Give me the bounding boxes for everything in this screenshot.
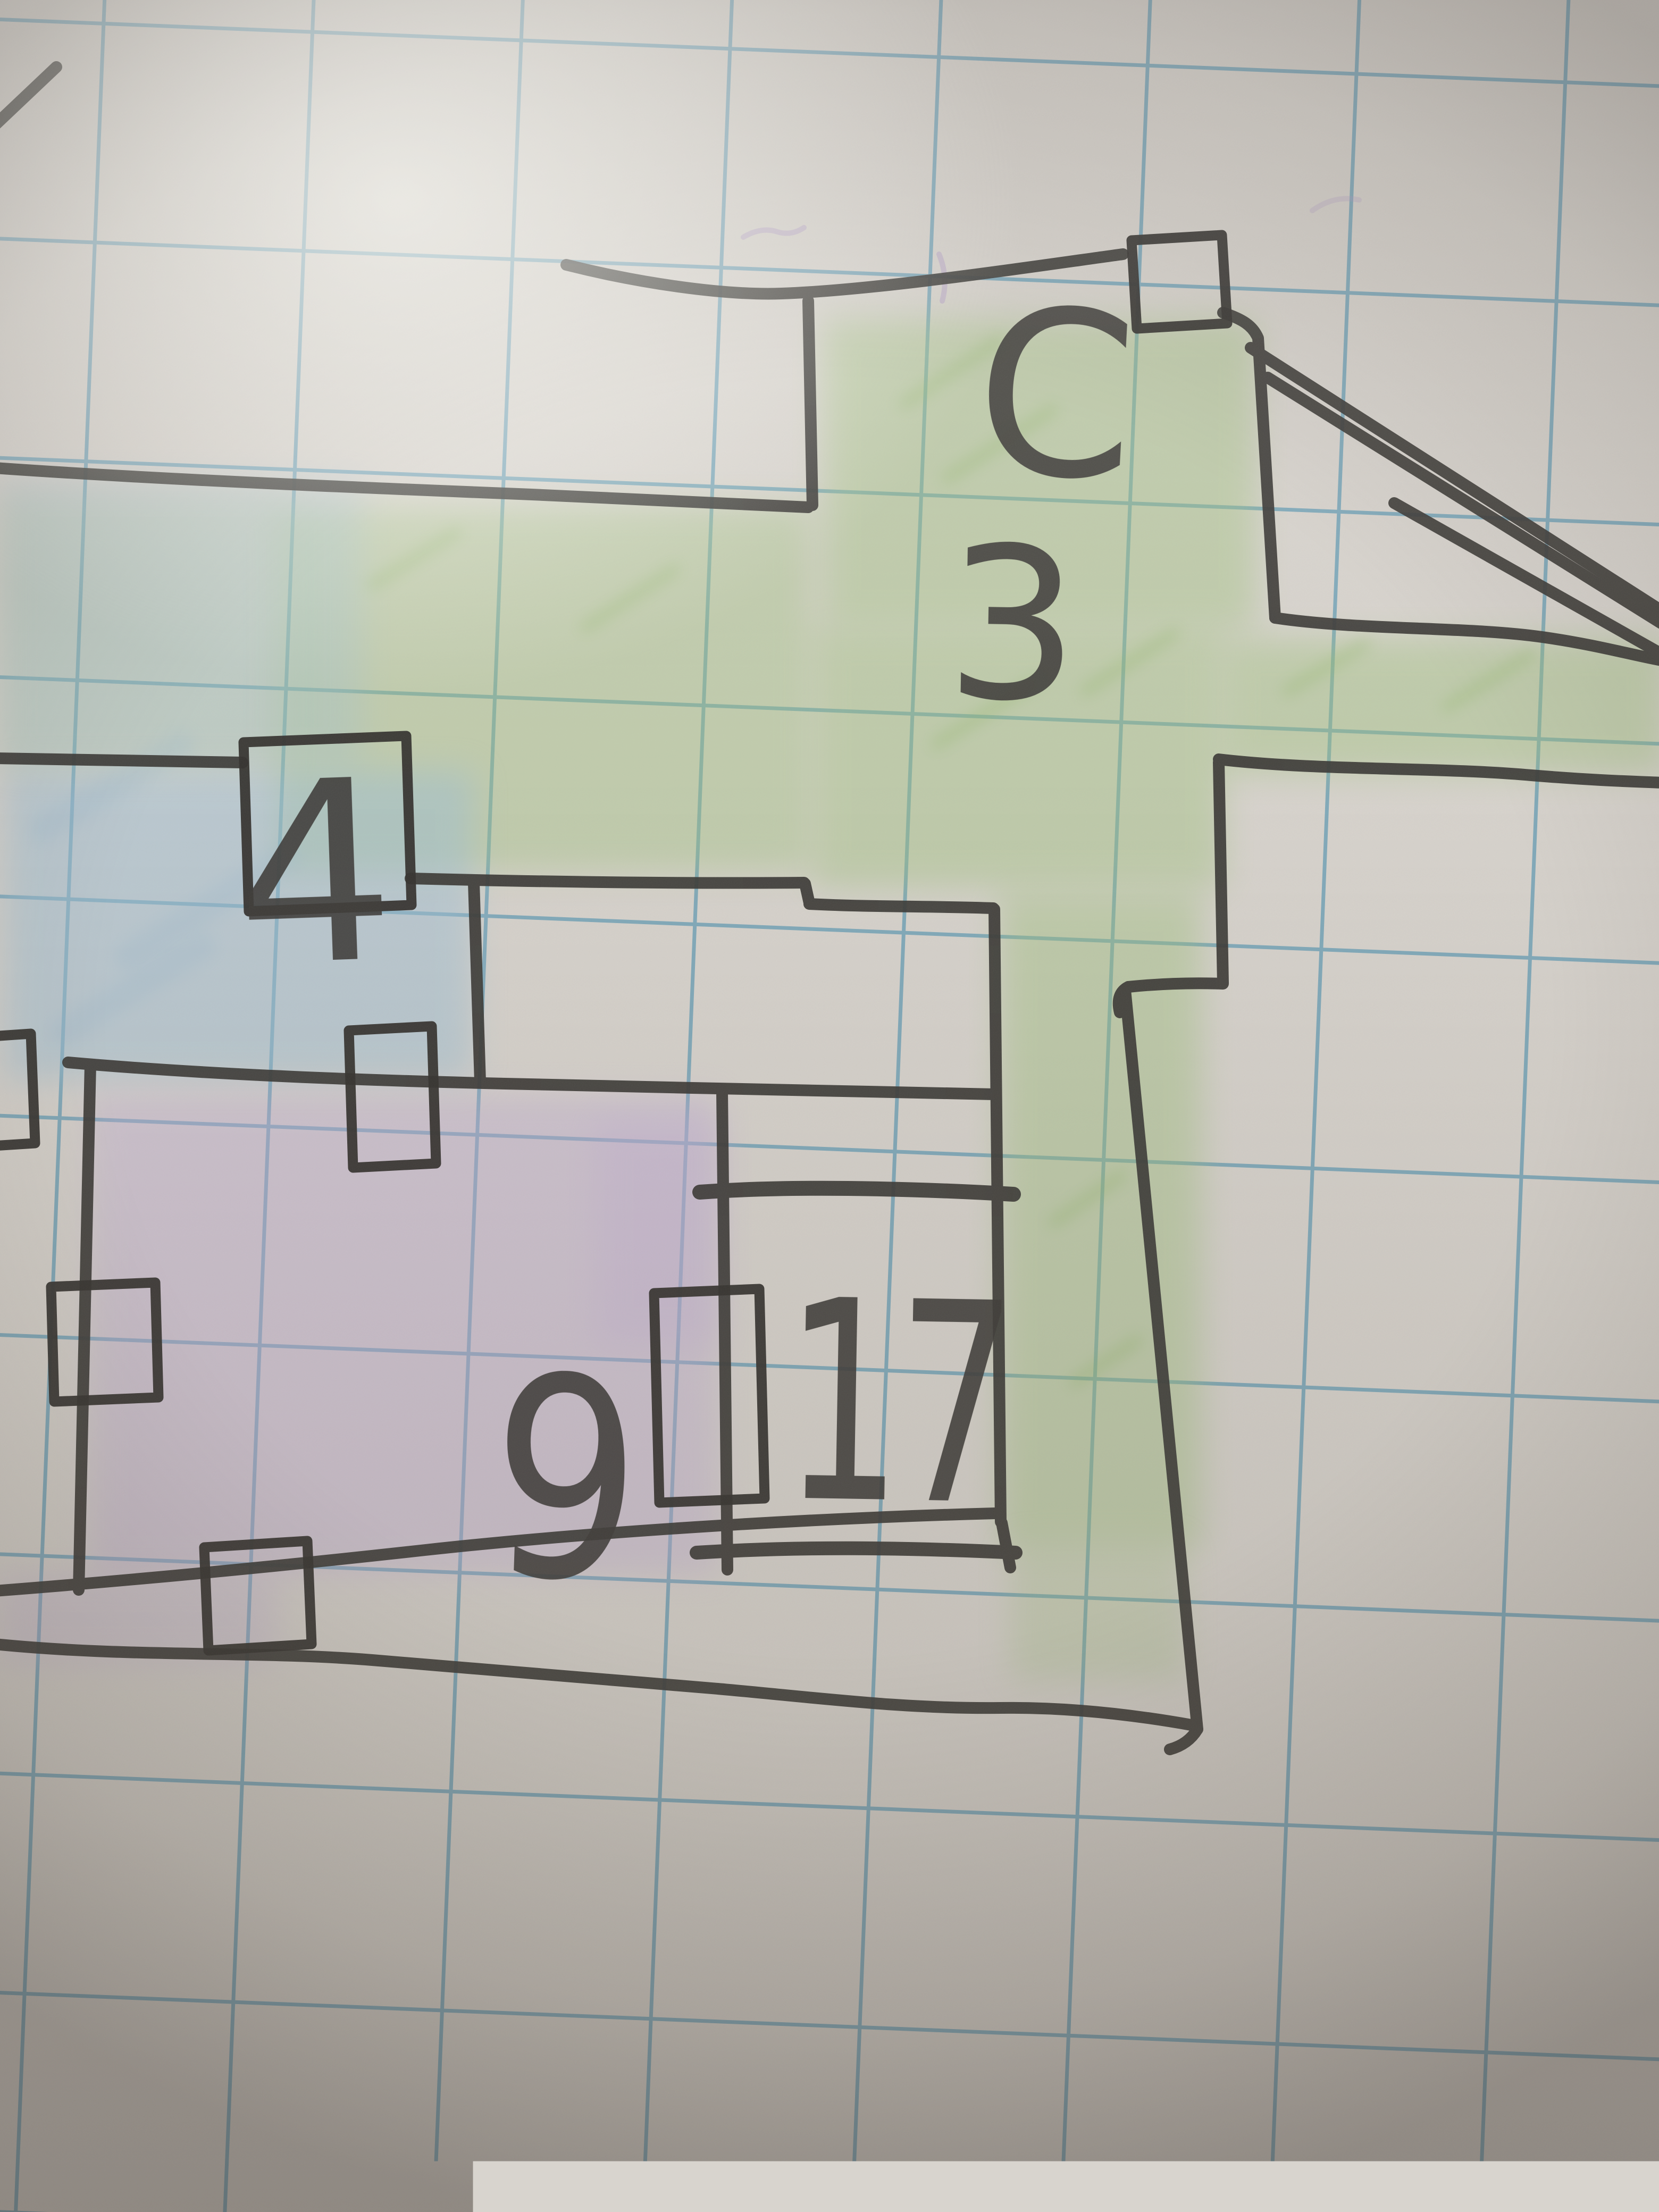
map-photo: C 3 4 9 17 [0, 0, 1659, 2212]
dungeon-map-drawing: C 3 4 9 17 [0, 0, 1659, 2212]
paper-grain-texture [0, 0, 1659, 2212]
